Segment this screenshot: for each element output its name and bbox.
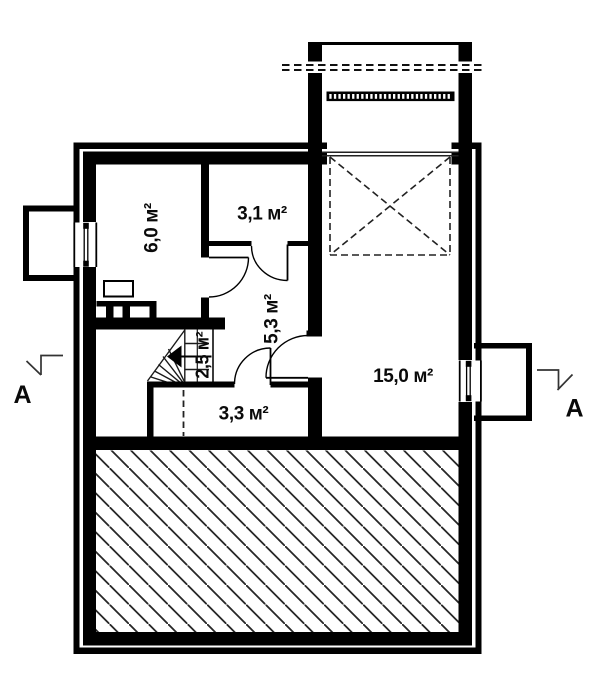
svg-text:15,0 м²: 15,0 м² bbox=[373, 366, 433, 387]
svg-text:6,0 м²: 6,0 м² bbox=[142, 203, 163, 253]
svg-text:3,3 м²: 3,3 м² bbox=[219, 404, 269, 425]
svg-text:5,3 м²: 5,3 м² bbox=[261, 294, 282, 344]
svg-text:3,1 м²: 3,1 м² bbox=[237, 204, 287, 225]
svg-text:2,5 м²: 2,5 м² bbox=[192, 331, 212, 378]
svg-text:A: A bbox=[565, 395, 583, 423]
svg-text:A: A bbox=[13, 381, 31, 409]
